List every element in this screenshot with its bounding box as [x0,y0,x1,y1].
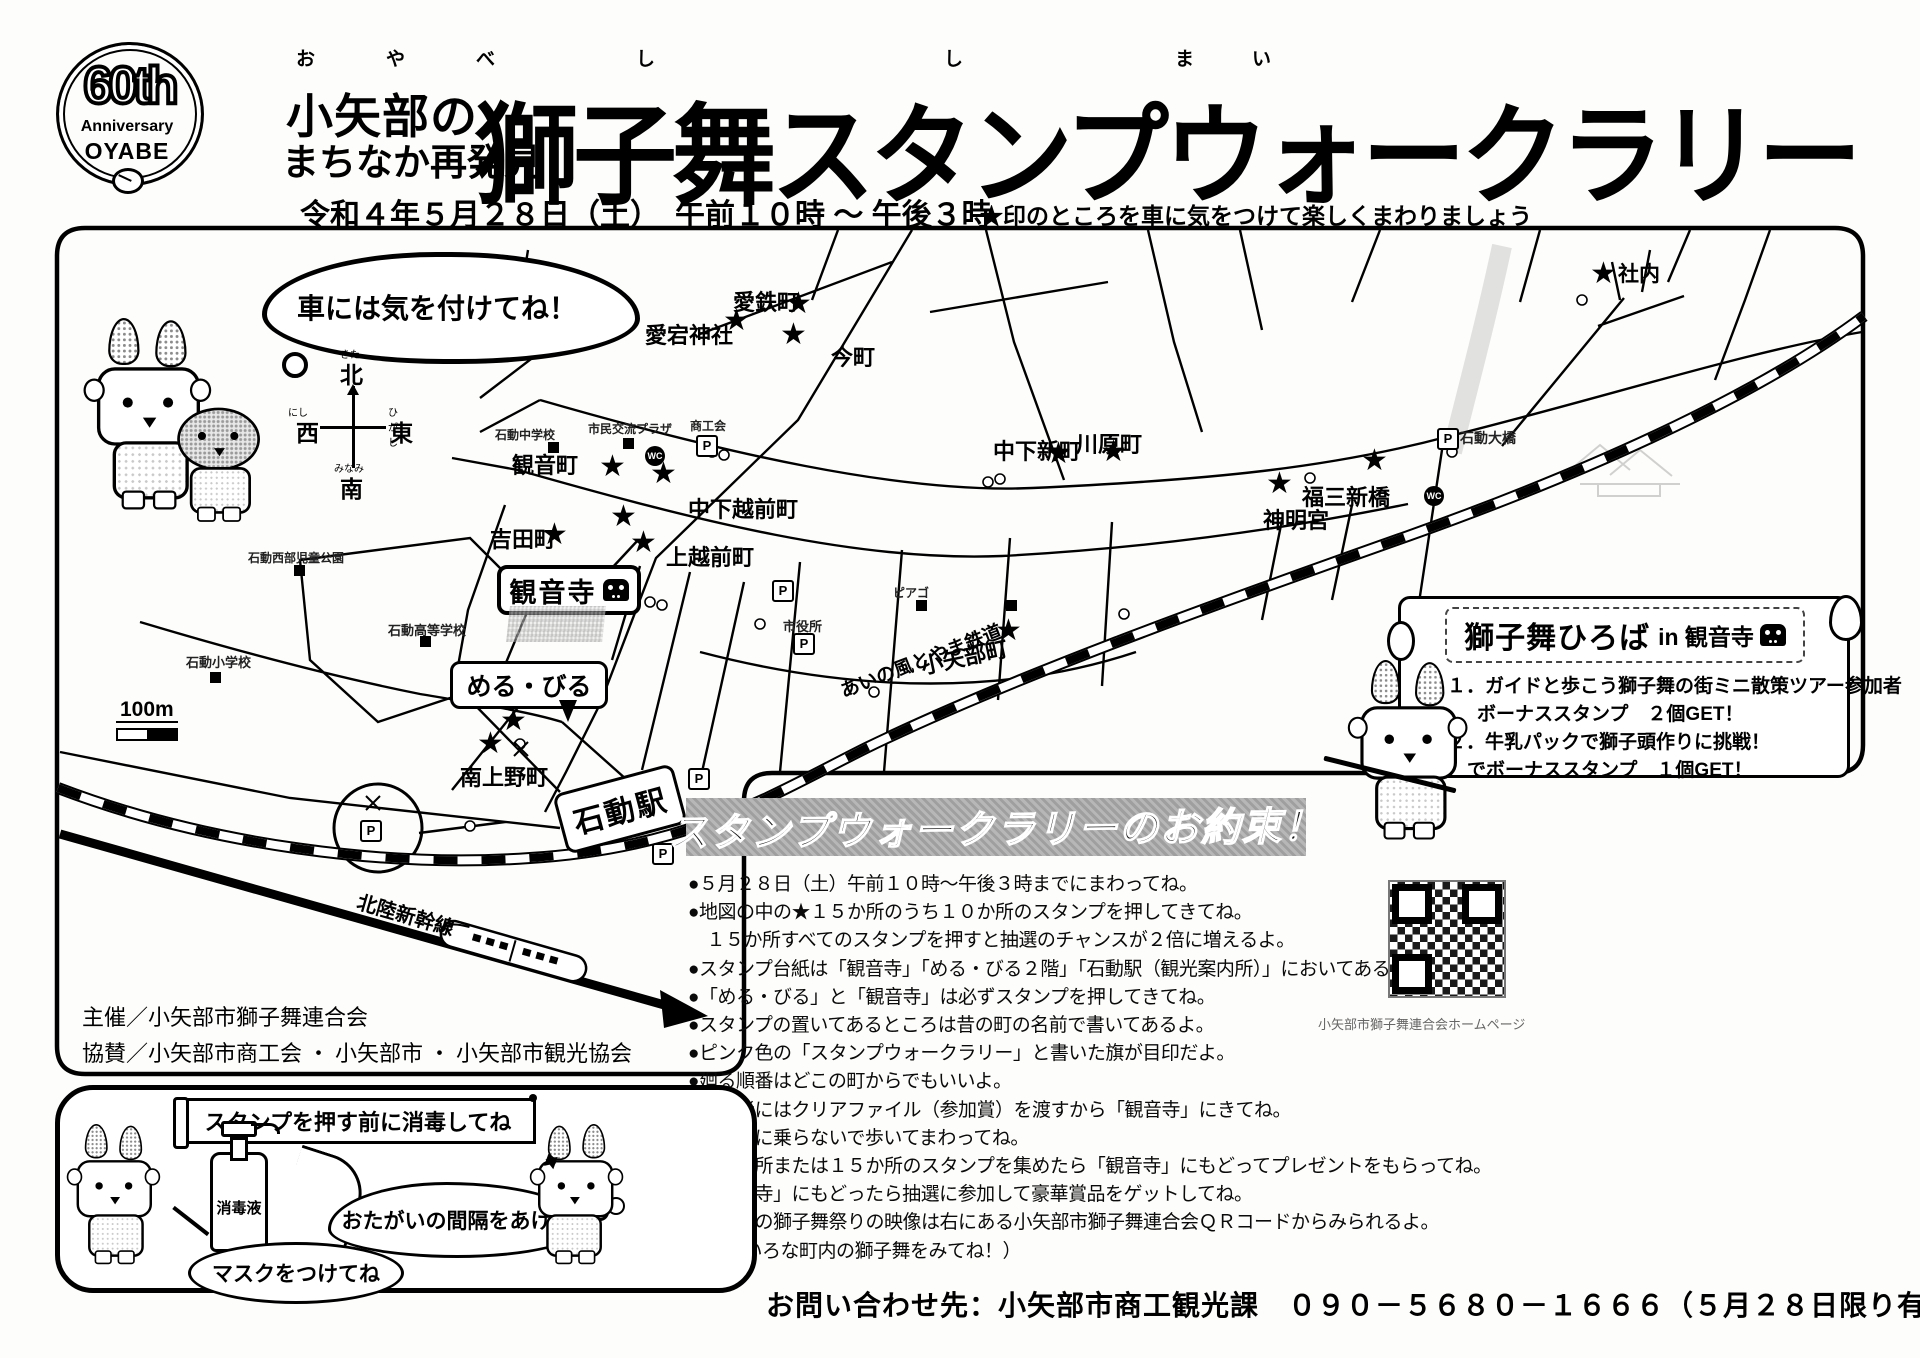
lion-mascot-illustration [170,368,278,523]
stamp-star-icon: ★ [723,306,750,336]
map-town-label: 南上野町 [460,760,548,792]
map-town-label: 愛宕神社 [645,318,733,350]
hiroba-panel-title: 獅子舞ひろば in 観音寺 [1445,607,1805,663]
rule-bullet: ●地図の中の★１５か所のうち１０か所のスタンプを押してきてね。 [688,897,1252,924]
map-poi-label: 石動中学校 [495,426,555,443]
stamp-star-icon: ★ [785,289,812,319]
rule-bullet: ●スタンプ台紙は「観音寺」「める・びる２階」「石動駅（観光案内所）」においてある… [688,954,1427,981]
shinkansen-label: 北陸新幹線 [354,886,458,941]
sponsor-credit: 協賛／小矢部市商工会 ・ 小矢部市 ・ 小矢部市観光協会 [82,1036,632,1068]
rule-bullet: ●１０か所または１５か所のスタンプを集めたら「観音寺」にもどってプレゼントをもら… [688,1151,1492,1178]
map-town-label: 社内 [1618,258,1660,288]
rules-title-banner: スタンプウォークラリーのお約束！ [686,798,1306,856]
building-square-icon [420,636,431,647]
parking-icon: P [696,435,718,457]
building-square-icon [623,438,634,449]
map-poi-label: 石動西部児童公園 [248,549,344,566]
mascot-illustration [70,1124,168,1265]
compass-south: 南 [340,470,363,504]
hiroba-list-item: ２．牛乳パックで獅子頭作りに挑戦！ [1447,727,1770,754]
qr-caption: 小矢部市獅子舞連合会ホームページ [1318,1014,1525,1033]
qr-code [1388,880,1506,998]
lion-head-icon [603,579,629,601]
rule-bullet: ●「観音寺」にもどったら抽選に参加して豪華賞品をゲットしてね。 [688,1179,1252,1206]
rule-bullet: ●参加者にはクリアファイル（参加賞）を渡すから「観音寺」にきてね。 [688,1095,1291,1122]
contact-line: お問い合わせ先：小矢部市商工観光課 ０９０－５６８０－１６６６（５月２８日限り有… [766,1284,1920,1324]
parking-icon: P [360,820,382,842]
map-town-label: 中下越前町 [688,492,798,524]
rule-bullet: １５か所すべてのスタンプを押すと抽選のチャンスが２倍に増えるよ。 [688,925,1295,952]
stamp-star-icon: ★ [541,520,568,550]
map-town-label: 観音町 [512,448,578,480]
building-square-icon [548,442,559,453]
sanitizer-label: 消毒液 [213,1197,265,1218]
mask-speech-bubble: マスクをつけてね [188,1242,404,1304]
stamp-star-icon: ★ [1100,437,1127,467]
stamp-star-icon: ★ [1266,469,1293,499]
parking-icon: P [772,580,794,602]
map-poi-label: 市民交流プラザ [588,420,672,437]
faded-stamp-mark [506,606,606,642]
stamp-star-icon: ★ [1045,439,1072,469]
compass-west: 西 [296,414,319,448]
stamp-star-icon: ★ [500,706,527,736]
rule-bullet: ●５月２８日（土）午前１０時～午後３時までにまわってね。 [688,869,1198,896]
building-square-icon [1006,600,1017,611]
rule-bullet: ●小矢部の獅子舞祭りの映像は右にある小矢部市獅子舞連合会ＱＲコードからみられるよ… [688,1207,1439,1234]
caution-bubble-text: 車には気を付けてね！ [297,287,577,327]
mascot-with-rod-illustration [1352,660,1478,841]
girl-mascot-illustration [522,1124,620,1265]
building-square-icon [210,672,221,683]
map-poi-label: 商工会 [690,417,726,434]
building-square-icon [916,600,927,611]
rule-bullet: ●スタンプの置いてあるところは昔の町の名前で書いてあるよ。 [688,1010,1214,1037]
map-town-label: 今町 [831,340,875,372]
restroom-icon: WC [645,446,665,466]
building-square-icon [294,565,305,576]
scroll-curl-left [1387,621,1415,661]
hiroba-list-item: １．ガイドと歩こう獅子舞の街ミニ散策ツアー参加者 [1447,671,1902,698]
map-poi-label: 石動小学校 [186,652,251,671]
parking-icon: P [1437,428,1459,450]
restroom-icon: WC [1424,486,1444,506]
hiroba-list-item: ボーナススタンプ ２個GET！ [1477,699,1744,726]
organizer-credit: 主催／小矢部市獅子舞連合会 [82,1000,368,1032]
stamp-star-icon: ★ [599,452,626,482]
map-town-label: 上越前町 [666,540,754,572]
stamp-star-icon: ★ [780,320,807,350]
map-poi-label: ピアゴ [893,584,929,601]
map-town-label: 神明宮 [1263,503,1329,535]
compass-east: 東 [390,414,413,448]
hiroba-list-item: でボーナススタンプ １個GET！ [1467,755,1753,782]
flyer-page: 60th Anniversary OYABE お や べ し し まい 小矢部の… [0,0,1920,1358]
map-scale: 100m [116,698,178,741]
rule-bullet: ●「める・びる」と「観音寺」は必ずスタンプを押してきてね。 [688,982,1215,1009]
rule-bullet: ●ピンク色の「スタンプウォークラリー」と書いた旗が目印だよ。 [688,1038,1235,1065]
covid-manner-box: スタンプを押す前に消毒してね 消毒液 マスクをつけてね おたがいの間隔をあけて [55,1085,757,1293]
parking-icon: P [793,633,815,655]
stamp-star-icon: ★ [1590,259,1617,289]
scale-label: 100m [116,698,178,723]
stamp-star-icon: ★ [1361,446,1388,476]
merubiru-label-box: める・びる [450,661,608,709]
sanitizer-bottle-illustration: 消毒液 [210,1152,268,1252]
stamp-star-icon: ★ [610,502,637,532]
parking-icon: P [688,768,710,790]
scale-bar [116,728,178,741]
map-poi-label: 石動大橋 [1460,428,1516,448]
scroll-curl-right [1829,595,1863,641]
lion-head-icon [1760,624,1786,646]
isurugi-station-box: 石動駅 [552,763,688,855]
compass-rose: きた 北 にし 西 ひがし 東 みなみ 南 [296,348,406,488]
stamp-star-icon: ★ [995,616,1022,646]
